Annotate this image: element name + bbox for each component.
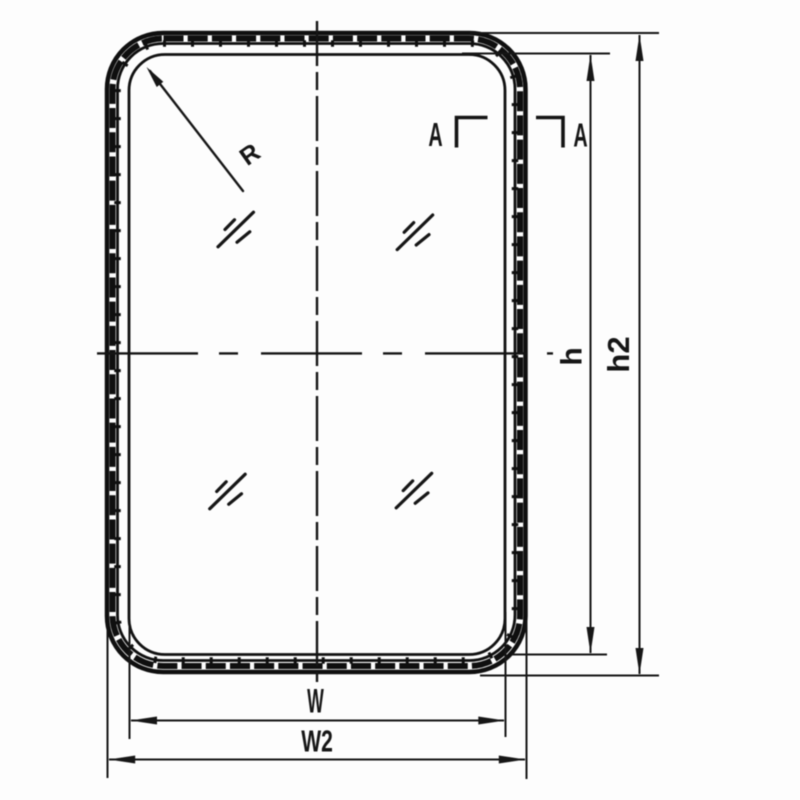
svg-text:h: h [556,347,589,365]
svg-text:W2: W2 [301,723,333,758]
svg-text:A: A [573,116,587,154]
svg-text:W: W [307,681,324,720]
svg-text:h2: h2 [601,336,636,372]
svg-text:A: A [428,116,442,154]
svg-text:R: R [235,138,266,171]
